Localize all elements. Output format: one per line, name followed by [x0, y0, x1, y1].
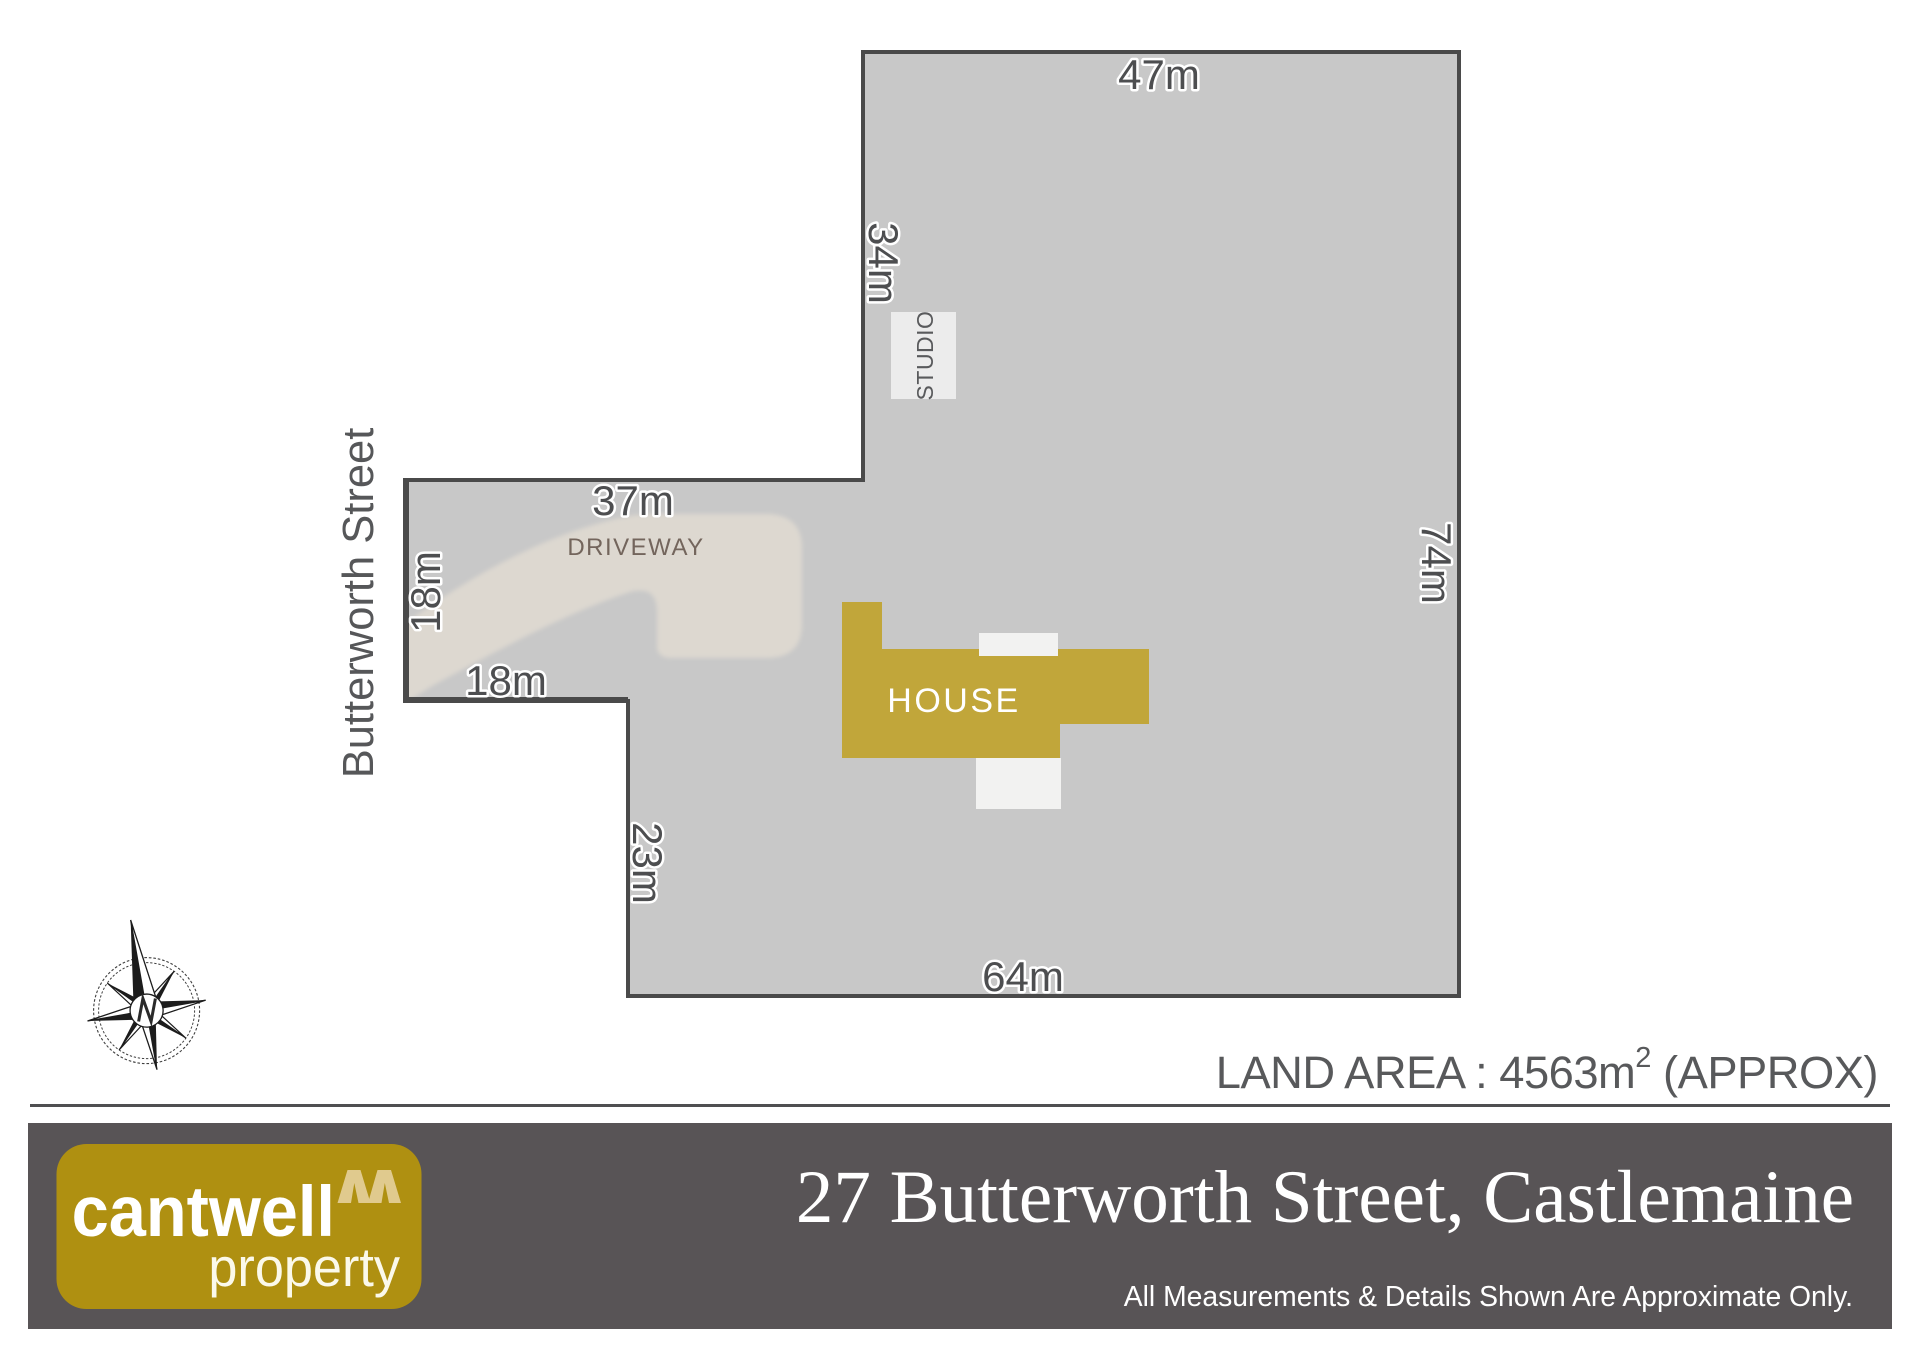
svg-text:DRIVEWAY: DRIVEWAY: [567, 534, 704, 561]
svg-text:STUDIO: STUDIO: [912, 311, 938, 401]
svg-text:27 Butterworth Street, Castlem: 27 Butterworth Street, Castlemaine: [796, 1156, 1854, 1239]
svg-text:18m: 18m: [402, 551, 449, 633]
svg-text:LAND AREA : 4563m2 (APPROX): LAND AREA : 4563m2 (APPROX): [1216, 1042, 1878, 1098]
svg-text:47m: 47m: [1118, 51, 1200, 98]
svg-text:HOUSE: HOUSE: [887, 682, 1020, 720]
svg-text:property: property: [208, 1237, 400, 1299]
svg-text:23m: 23m: [624, 822, 671, 904]
svg-text:18m: 18m: [465, 657, 547, 704]
svg-text:Butterworth Street: Butterworth Street: [335, 428, 383, 779]
svg-text:37m: 37m: [592, 477, 674, 524]
svg-text:74m: 74m: [1413, 522, 1460, 604]
svg-text:All Measurements & Details Sho: All Measurements & Details Shown Are App…: [1124, 1280, 1853, 1312]
svg-text:64m: 64m: [982, 953, 1064, 1000]
svg-text:34m: 34m: [860, 222, 907, 304]
